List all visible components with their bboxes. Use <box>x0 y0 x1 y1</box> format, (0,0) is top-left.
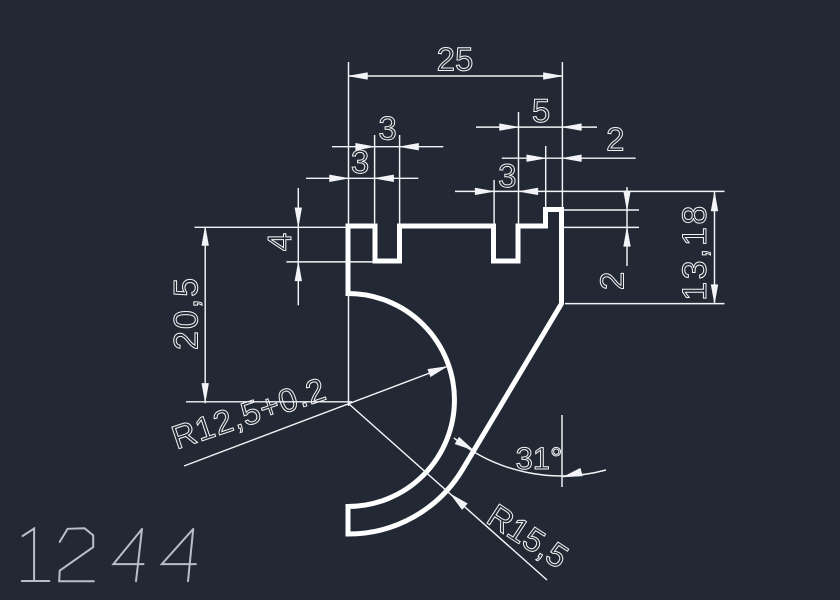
svg-text:31°: 31° <box>516 441 563 476</box>
svg-text:25: 25 <box>437 40 474 77</box>
svg-text:3: 3 <box>498 157 516 194</box>
svg-text:13,18: 13,18 <box>676 203 714 301</box>
svg-text:4: 4 <box>261 233 298 251</box>
svg-text:3: 3 <box>351 143 369 180</box>
svg-text:20,5: 20,5 <box>168 276 206 350</box>
svg-text:5: 5 <box>532 92 550 129</box>
svg-text:2: 2 <box>606 120 624 157</box>
svg-text:2: 2 <box>594 272 631 290</box>
svg-text:3: 3 <box>378 109 396 146</box>
